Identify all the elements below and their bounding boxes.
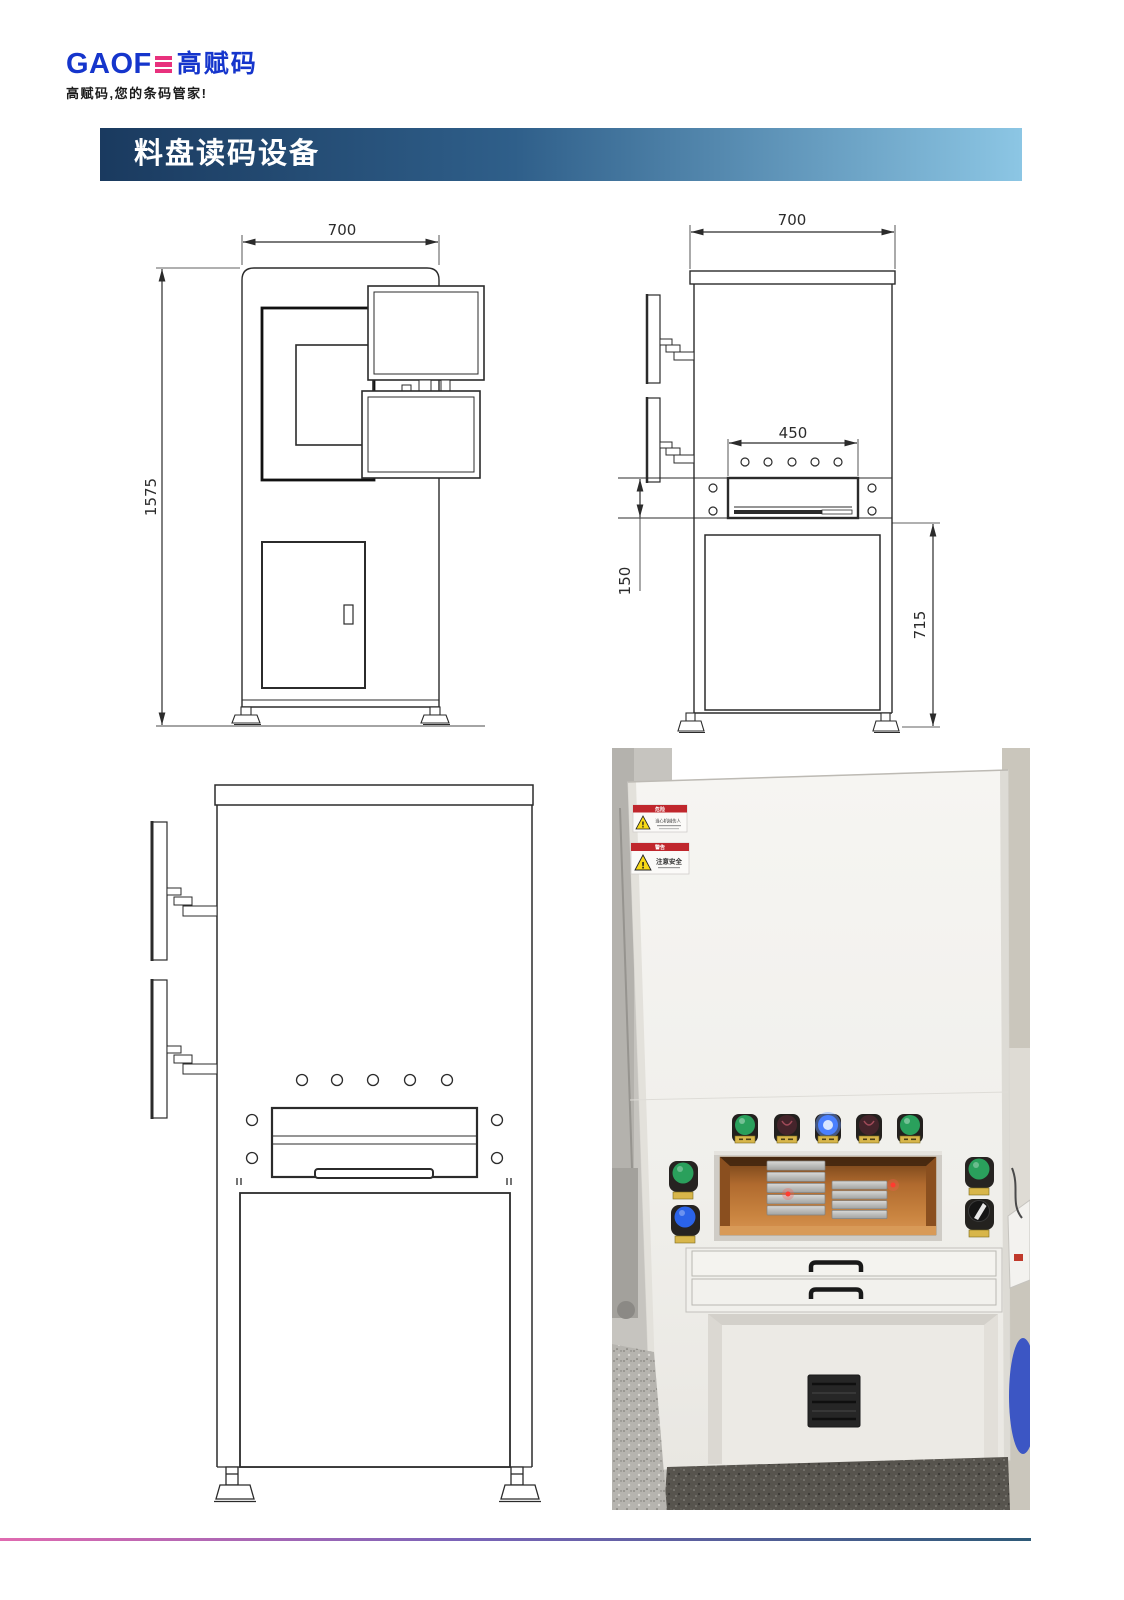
svg-text:!: ! <box>641 862 645 872</box>
monitor-bottom-edge <box>152 979 217 1119</box>
brand-ebars-icon <box>155 56 172 74</box>
dim-tray-width-value: 450 <box>779 424 808 442</box>
tray-stack-left <box>767 1161 825 1215</box>
monitor-bottom <box>362 391 480 478</box>
footer-accent-line <box>0 1538 1031 1541</box>
brand-cn: 高赋码 <box>177 52 258 77</box>
leveling-feet <box>678 713 900 733</box>
brand-tagline: 高赋码,您的条码管家! <box>66 83 258 102</box>
dim-front-height <box>156 268 240 725</box>
dim-slot-height-value: 150 <box>616 567 634 596</box>
warning-label-2: 警告 ! 注意安全 <box>631 843 689 874</box>
drawing-rear-view <box>130 750 560 1510</box>
cabinet-top-band <box>690 271 895 284</box>
equipment-photo: 危险 ! 当心机械伤人 警告 ! 注意安全 <box>612 748 1030 1510</box>
dim-table-height-value: 715 <box>911 611 929 640</box>
indicator-button-1 <box>732 1114 758 1143</box>
side-door <box>705 535 880 710</box>
drawing-side-view: 700 450 150 715 <box>600 195 955 745</box>
panel-ticks <box>237 1178 511 1185</box>
section-title-bar: 料盘读码设备 <box>100 128 1022 181</box>
svg-text:当心机械伤人: 当心机械伤人 <box>655 818 681 825</box>
front-door <box>262 542 365 688</box>
brand-logo: GAOF 高赋码 高赋码,您的条码管家! <box>66 50 258 102</box>
drawer-bottom <box>692 1279 996 1305</box>
vent-grille <box>808 1375 860 1427</box>
warning-label-1: 危险 ! 当心机械伤人 <box>633 805 687 832</box>
indicator-button-2 <box>774 1114 800 1143</box>
leveling-feet <box>214 1467 541 1502</box>
dim-front-width <box>242 235 439 265</box>
drawing-front-view: 700 1575 <box>140 195 500 740</box>
dim-side-width <box>690 225 895 269</box>
monitor-bottom-edge <box>647 397 694 483</box>
cabinet-top-band <box>215 785 533 805</box>
indicator-button-4 <box>856 1114 882 1143</box>
svg-text:注意安全: 注意安全 <box>656 857 683 866</box>
tray-lip <box>315 1169 433 1178</box>
dim-front-height-value: 1575 <box>142 478 160 516</box>
monitor-top-edge <box>647 294 694 384</box>
brand-latin: GAOF <box>66 50 152 79</box>
tray-holes <box>741 458 842 466</box>
page-root: GAOF 高赋码 高赋码,您的条码管家! 料盘读码设备 <box>0 0 1124 1600</box>
lower-recess <box>708 1314 998 1464</box>
rear-door <box>240 1193 510 1467</box>
dim-front-width-value: 700 <box>328 221 357 239</box>
monitor-top <box>368 286 484 380</box>
indicator-button-3-lit <box>815 1112 841 1143</box>
svg-text:危险: 危险 <box>654 806 666 813</box>
drawers <box>686 1248 1002 1312</box>
dim-side-width-value: 700 <box>778 211 807 229</box>
tray-slot <box>272 1108 477 1177</box>
monitor-top-edge <box>152 821 217 961</box>
indicator-button-5 <box>897 1114 923 1143</box>
section-title: 料盘读码设备 <box>134 138 320 170</box>
svg-text:!: ! <box>641 821 645 830</box>
scan-window <box>714 1151 942 1241</box>
tray-holes <box>297 1075 453 1086</box>
leveling-feet <box>232 707 450 725</box>
svg-text:警告: 警告 <box>654 844 665 851</box>
